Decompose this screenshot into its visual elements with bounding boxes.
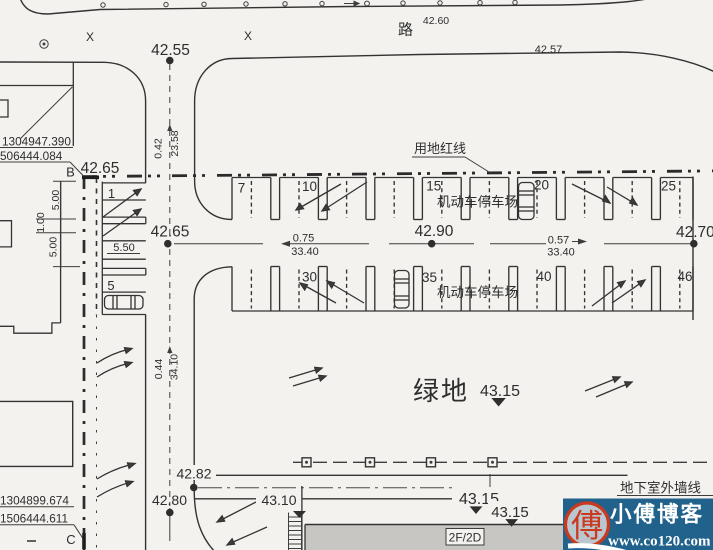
svg-text:机动车停车场: 机动车停车场 [437, 284, 518, 300]
svg-text:0.44: 0.44 [153, 359, 165, 380]
svg-text:43.15: 43.15 [480, 383, 520, 400]
svg-text:42.70: 42.70 [676, 224, 713, 241]
svg-text:0.75: 0.75 [293, 233, 314, 245]
svg-text:1304899.674: 1304899.674 [0, 494, 69, 508]
svg-text:42.82: 42.82 [176, 466, 211, 482]
svg-text:7: 7 [238, 181, 246, 196]
svg-text:1506444.611: 1506444.611 [0, 512, 68, 526]
svg-text:C: C [66, 532, 75, 547]
svg-text:43.10: 43.10 [261, 492, 296, 508]
svg-text:42.80: 42.80 [152, 492, 187, 508]
svg-text:42.60: 42.60 [423, 15, 449, 27]
svg-text:机动车停车场: 机动车停车场 [437, 194, 518, 210]
svg-text:43.15: 43.15 [491, 504, 529, 521]
svg-text:5.00: 5.00 [50, 190, 62, 211]
svg-text:1: 1 [108, 186, 115, 201]
svg-text:小傅博客: 小傅博客 [610, 502, 704, 527]
svg-text:5.00: 5.00 [48, 237, 60, 258]
svg-text:0.57: 0.57 [548, 235, 569, 247]
svg-text:33.40: 33.40 [547, 247, 575, 259]
svg-text:46: 46 [677, 269, 692, 284]
svg-text:X: X [244, 29, 252, 43]
svg-text:1304947.390: 1304947.390 [2, 135, 71, 149]
svg-text:42.55: 42.55 [151, 42, 190, 59]
svg-text:X: X [86, 30, 94, 44]
svg-text:23.58: 23.58 [169, 130, 181, 156]
svg-text:506444.084: 506444.084 [0, 149, 63, 163]
svg-text:34.10: 34.10 [169, 354, 181, 380]
svg-text:42.65: 42.65 [151, 224, 190, 241]
svg-text:用地红线: 用地红线 [414, 141, 466, 156]
svg-text:25: 25 [661, 179, 676, 194]
svg-text:20: 20 [534, 178, 549, 193]
svg-text:地下室外墙线: 地下室外墙线 [620, 480, 701, 496]
svg-text:35: 35 [422, 270, 437, 285]
svg-text:5: 5 [107, 278, 114, 293]
svg-text:绿地: 绿地 [413, 376, 469, 406]
svg-text:42.90: 42.90 [415, 223, 454, 240]
svg-text:B: B [66, 165, 75, 180]
svg-text:2F/2D: 2F/2D [449, 531, 482, 545]
svg-text:0.42: 0.42 [153, 138, 165, 159]
svg-text:1.00: 1.00 [35, 212, 47, 233]
svg-text:www.co120.com: www.co120.com [608, 534, 711, 550]
svg-text:42.57: 42.57 [535, 44, 563, 56]
svg-text:40: 40 [536, 269, 551, 284]
svg-text:傅: 傅 [571, 508, 603, 544]
svg-text:30: 30 [302, 270, 317, 285]
svg-text:10: 10 [302, 179, 317, 194]
svg-text:5.50: 5.50 [113, 242, 134, 254]
svg-text:路: 路 [398, 22, 413, 39]
svg-text:42.65: 42.65 [81, 160, 120, 177]
svg-text:15: 15 [426, 179, 441, 194]
svg-text:33.40: 33.40 [291, 246, 319, 258]
